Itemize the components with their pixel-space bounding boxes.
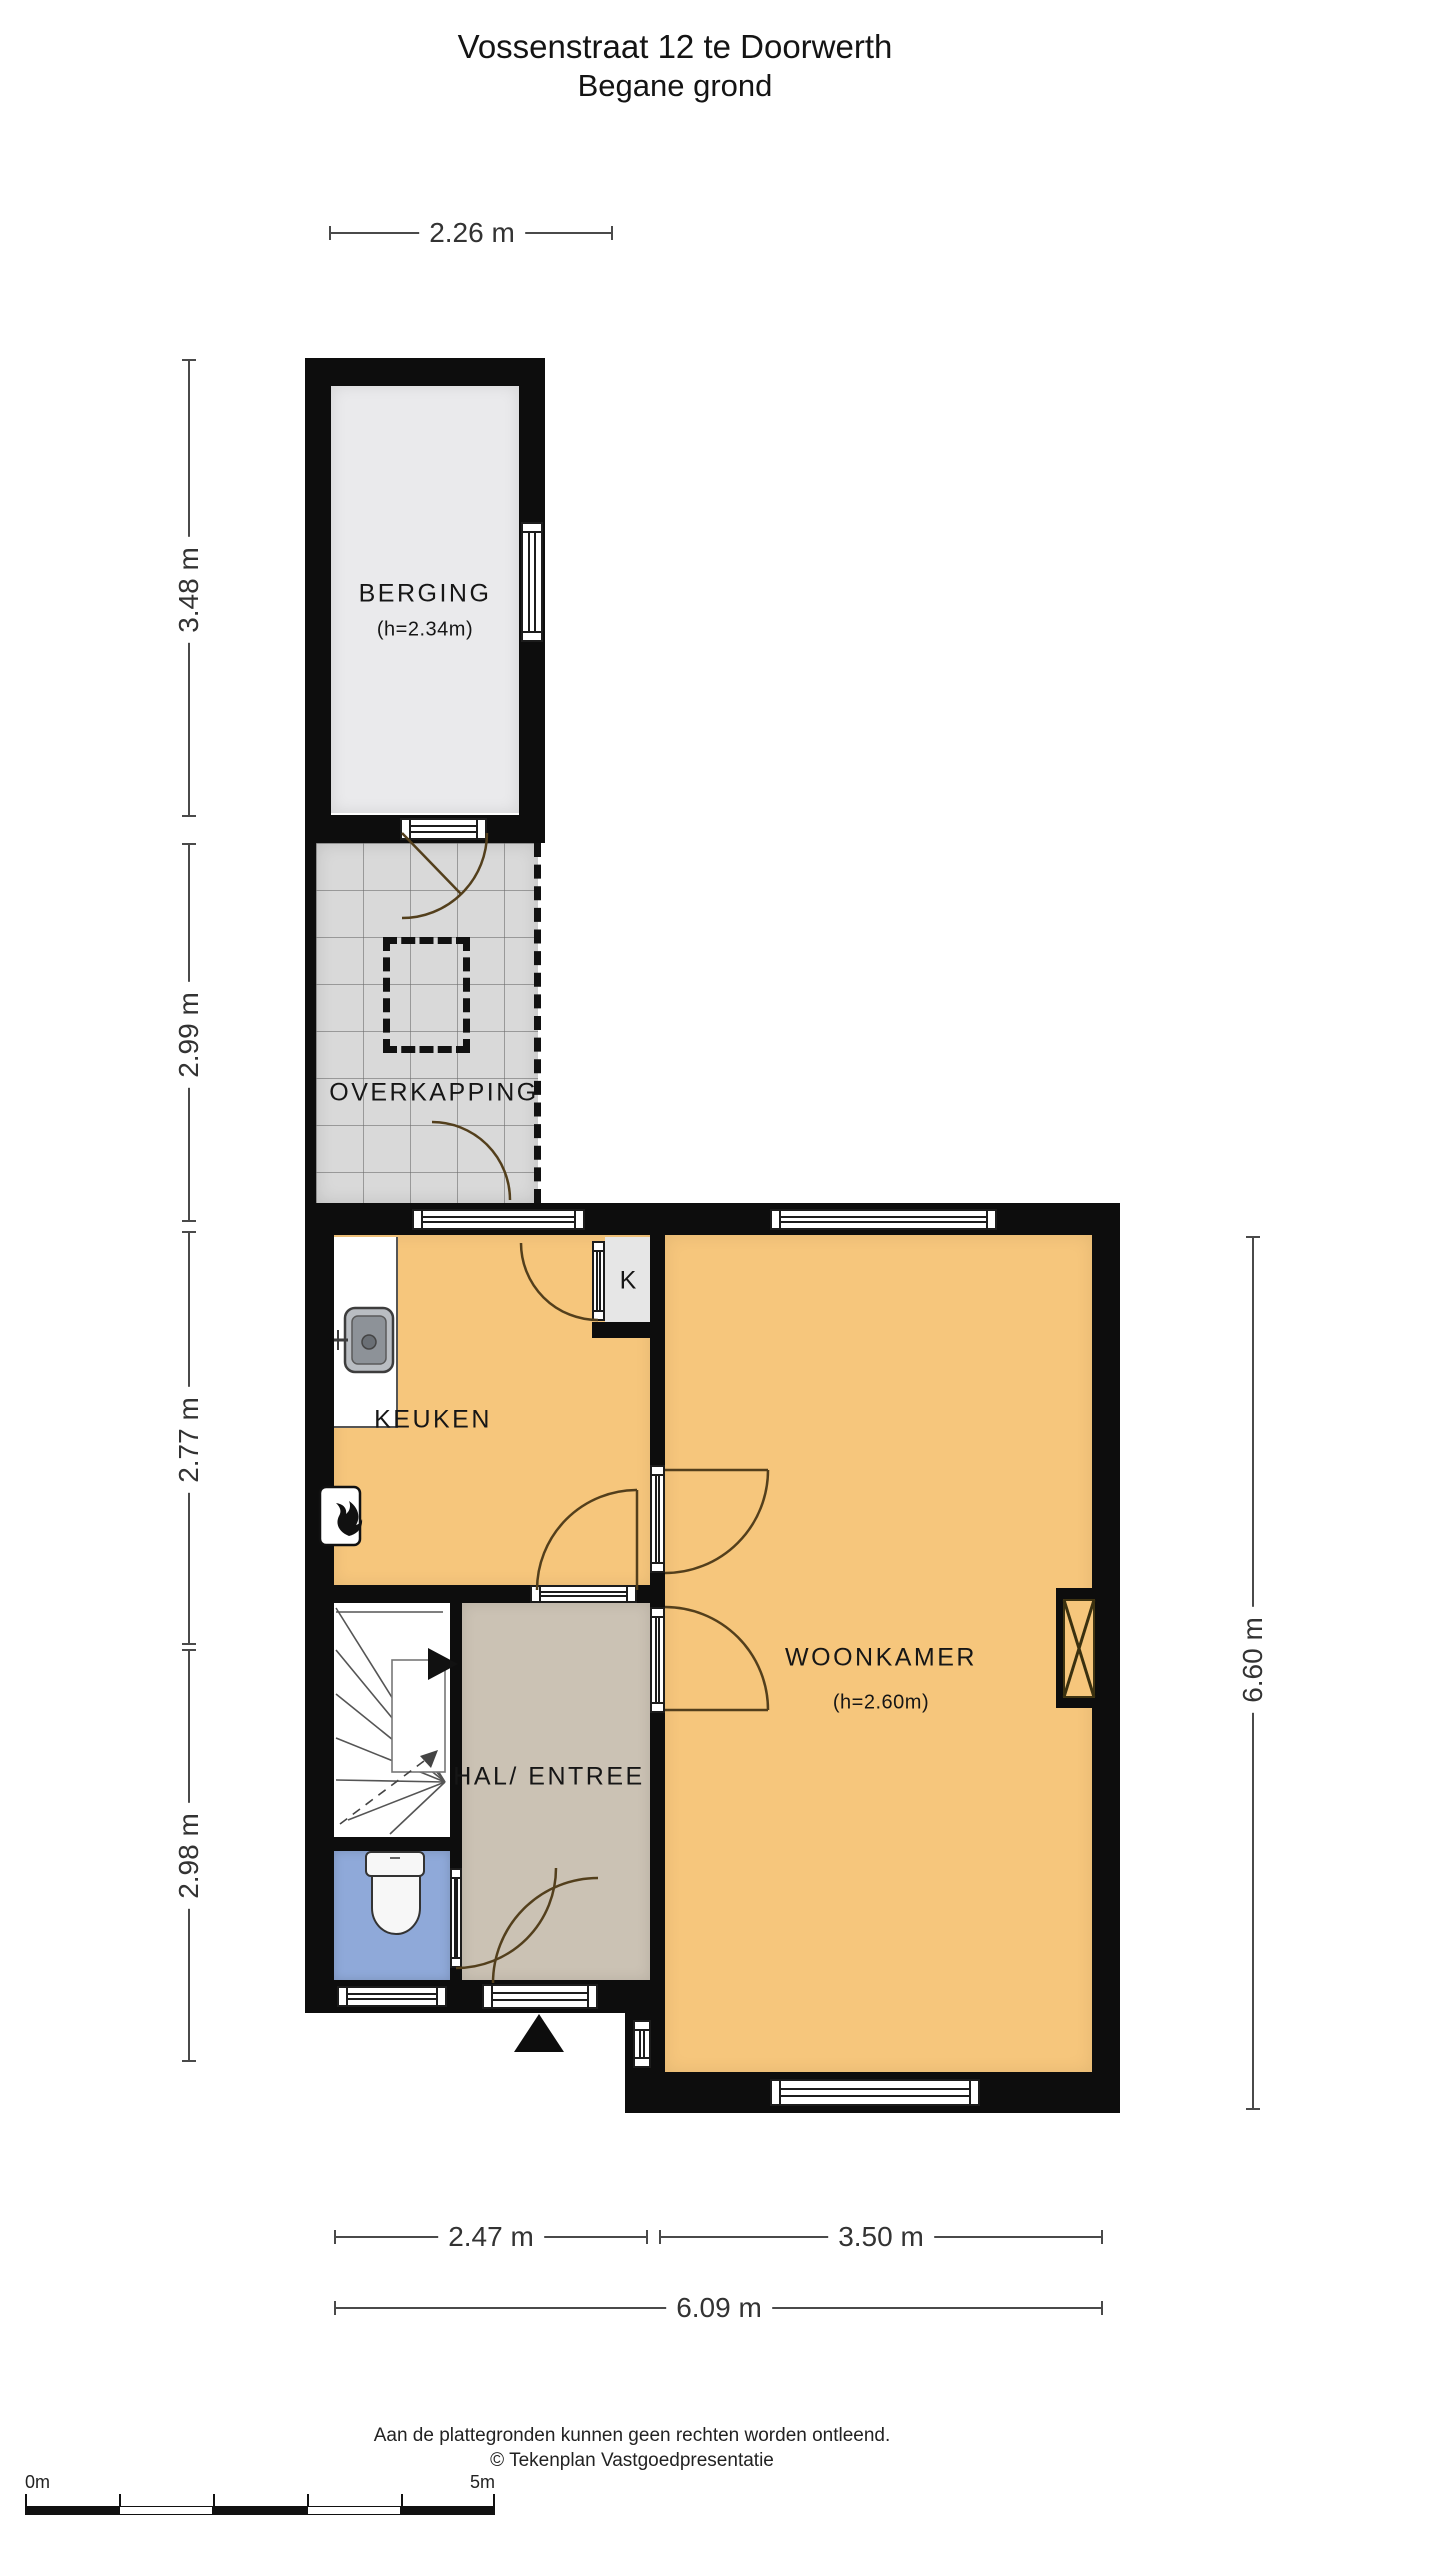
dim-tick: [1101, 2301, 1103, 2315]
dim-label-left-1: 3.48 m: [173, 537, 205, 643]
dim-tick: [659, 2230, 661, 2244]
dim-tick: [182, 1643, 196, 1645]
scale-bar-segment: [25, 2506, 119, 2515]
scale-tick: [307, 2494, 309, 2506]
disclaimer-text: Aan de plattegronden kunnen geen rechten…: [374, 2425, 891, 2447]
dim-tick: [611, 226, 613, 240]
dim-tick: [334, 2230, 336, 2244]
dim-label-bottom-total: 6.09 m: [666, 2292, 772, 2324]
flame-icon: [320, 1487, 362, 1545]
dim-tick: [1246, 1236, 1260, 1238]
front-door-arc: [493, 1878, 598, 1983]
dim-label-top: 2.26 m: [419, 217, 525, 249]
scale-tick: [119, 2494, 121, 2506]
scale-bar-segment: [119, 2506, 213, 2515]
floorplan-page: Vossenstraat 12 te Doorwerth Begane gron…: [0, 0, 1440, 2560]
dim-label-bottom-a: 2.47 m: [438, 2221, 544, 2253]
dim-tick: [182, 2060, 196, 2062]
copyright-text: © Tekenplan Vastgoedpresentatie: [490, 2450, 774, 2472]
dim-tick: [646, 2230, 648, 2244]
woonkamer-label: WOONKAMER: [785, 1644, 977, 1673]
kast-label: K: [620, 1267, 637, 1296]
dim-tick: [329, 226, 331, 240]
stairs-icon: [336, 1608, 445, 1834]
berging-height-note: (h=2.34m): [377, 619, 473, 642]
scale-tick: [493, 2494, 495, 2506]
dim-tick: [334, 2301, 336, 2315]
dim-label-bottom-b: 3.50 m: [828, 2221, 934, 2253]
dim-tick: [182, 1220, 196, 1222]
overkapping-label: OVERKAPPING: [329, 1079, 539, 1108]
dim-label-left-2: 2.99 m: [173, 982, 205, 1088]
scale-tick: [25, 2494, 27, 2506]
overkapping-door-arc: [432, 1122, 510, 1200]
keuken-woonkamer-door-arc: [665, 1470, 768, 1573]
sink-icon: [334, 1308, 393, 1372]
chimney-icon: [1056, 1588, 1104, 1708]
dim-tick: [182, 1649, 196, 1651]
keuken-hal-door-arc: [537, 1490, 637, 1590]
dim-tick: [182, 1231, 196, 1233]
keuken-label: KEUKEN: [374, 1406, 492, 1435]
scale-bar-segment: [213, 2506, 307, 2515]
entrance-arrow-icon: [514, 2014, 564, 2052]
woonkamer-height-note: (h=2.60m): [833, 1692, 929, 1715]
toilet-icon: [366, 1852, 424, 1934]
dim-tick: [182, 359, 196, 361]
berging-door-leaf: [402, 833, 461, 894]
dim-label-left-4: 2.98 m: [173, 1803, 205, 1909]
scale-start-label: 0m: [25, 2472, 50, 2493]
scale-end-label: 5m: [470, 2472, 495, 2493]
scale-bar-segment: [401, 2506, 495, 2515]
toilet-door-arc: [456, 1868, 556, 1968]
kast-door-arc: [521, 1243, 598, 1320]
floorplan-annotations: [0, 0, 1440, 2560]
dim-label-right: 6.60 m: [1237, 1607, 1269, 1713]
dim-label-left-3: 2.77 m: [173, 1387, 205, 1493]
dim-tick: [1101, 2230, 1103, 2244]
dim-tick: [182, 843, 196, 845]
hal-woonkamer-door-arc: [665, 1607, 768, 1710]
dim-tick: [1246, 2108, 1260, 2110]
berging-label: BERGING: [359, 580, 492, 609]
scale-tick: [213, 2494, 215, 2506]
dim-tick: [182, 815, 196, 817]
hal-label: HAL/ ENTREE: [453, 1763, 644, 1792]
scale-bar-segment: [307, 2506, 401, 2515]
scale-tick: [401, 2494, 403, 2506]
